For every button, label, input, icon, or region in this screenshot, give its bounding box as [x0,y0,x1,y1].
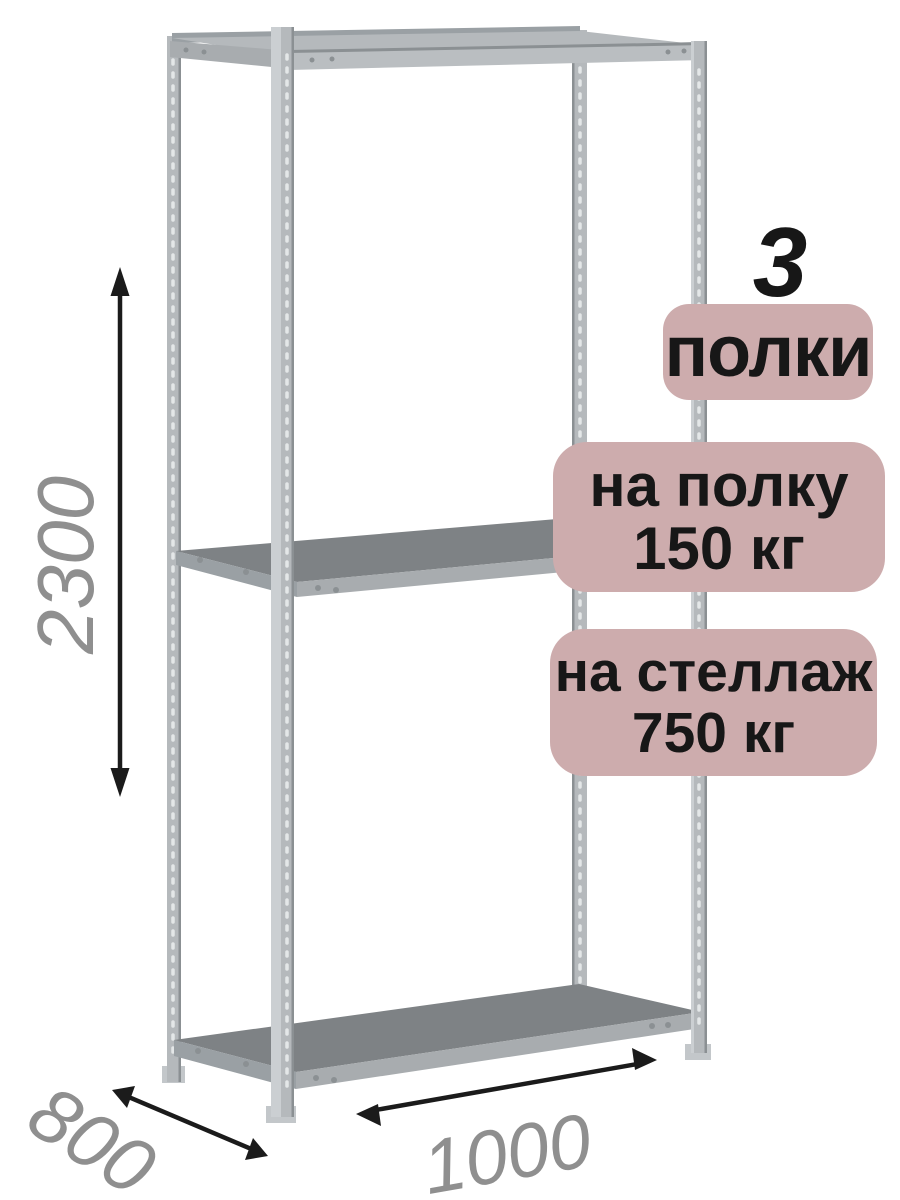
shelving-rack-illustration [0,0,900,1200]
per-shelf-load-line1: на полку [589,454,848,517]
shelf-top-assembly [170,26,704,70]
per-rack-load-line2: 750 кг [632,703,795,764]
per-rack-load-badge: на стеллаж 750 кг [550,629,877,776]
shelf-bottom [174,984,701,1089]
per-shelf-load-line2: 150 кг [633,517,805,580]
shelf-count-badge: полки [663,304,873,400]
height-arrow [111,267,130,797]
per-shelf-load-badge: на полку 150 кг [553,442,885,592]
per-rack-load-line1: на стеллаж [555,642,873,703]
shelf-count-number: 3 [724,212,836,312]
dimension-height-label: 2300 [26,454,106,676]
product-image: 2300 800 1000 3 полки на полку 150 кг на… [0,0,900,1200]
